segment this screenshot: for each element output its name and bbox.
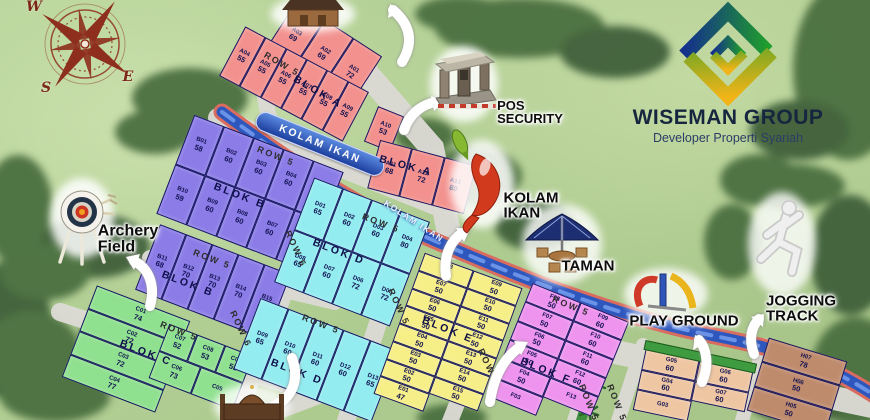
compass-letters: WSE [0,0,870,420]
company-tagline: Developer Properti Syariah [608,131,848,145]
siteplan-map: A0369A0269A0172A0455A0555A0655A0755A0855… [0,0,870,420]
company-name: WISEMAN GROUP [608,106,848,130]
compass-letter-W: W [26,0,42,15]
compass-letter-S: S [41,80,51,96]
compass-letter-E: E [123,69,134,85]
branding: WISEMAN GROUP Developer Properti Syariah [608,106,848,145]
